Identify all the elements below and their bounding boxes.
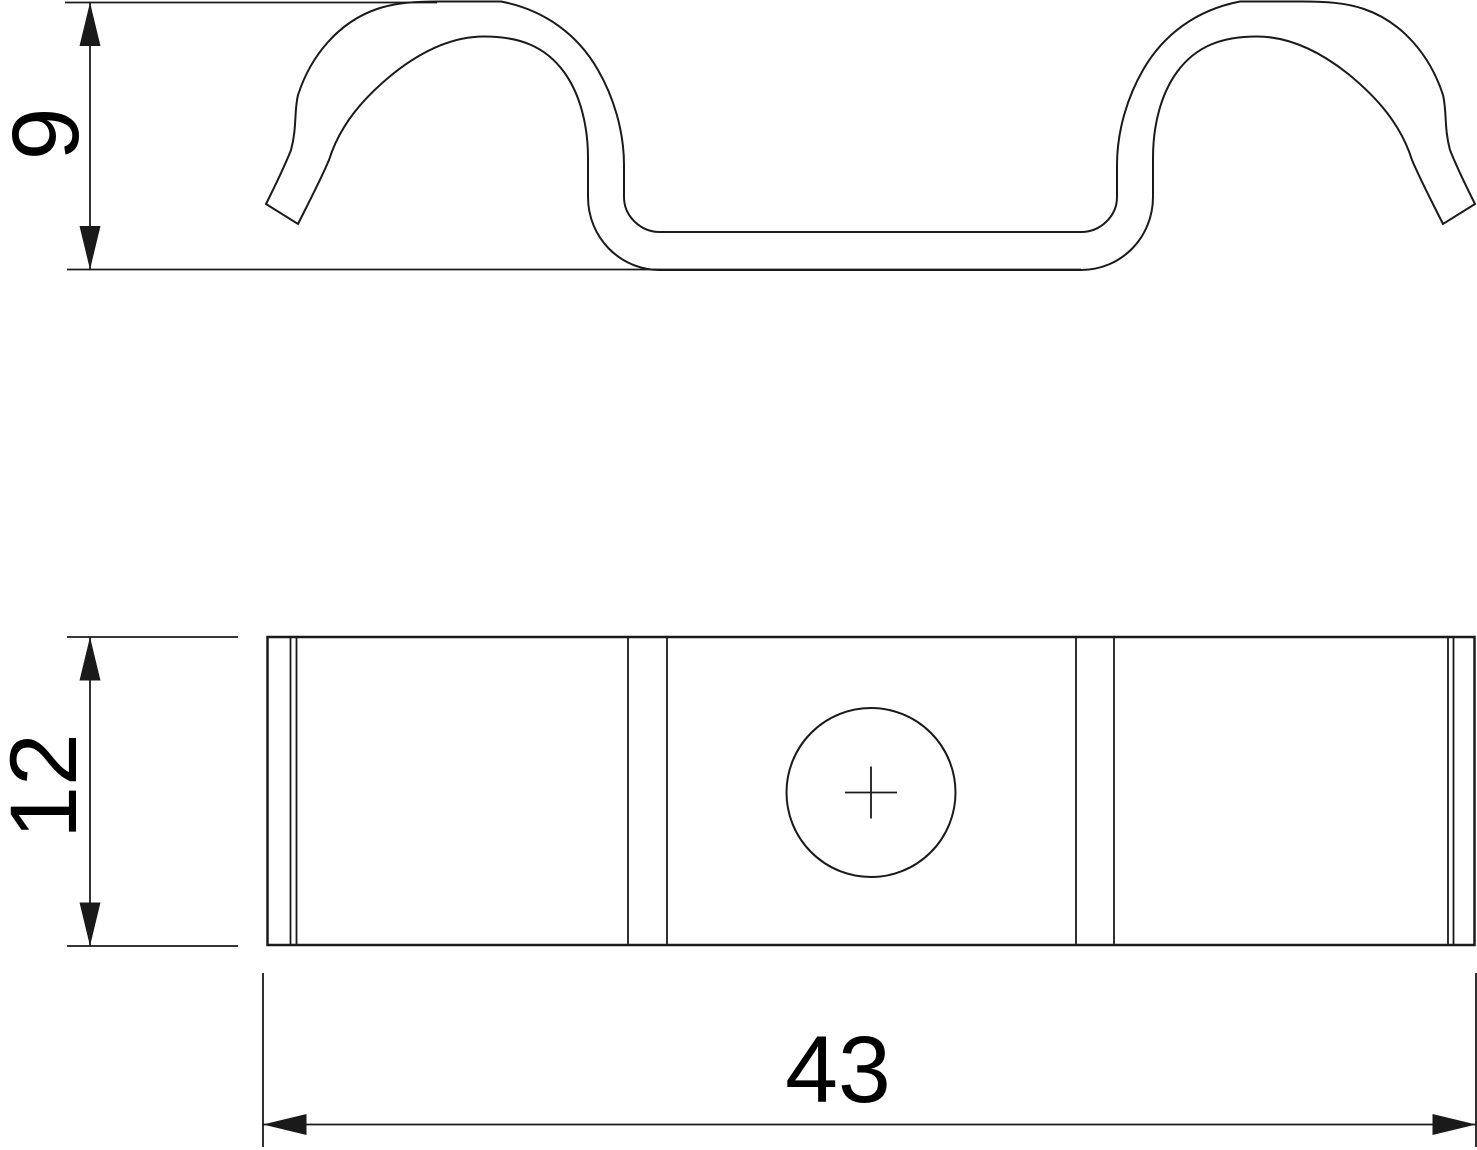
clip-profile-outline xyxy=(266,2,1475,271)
arrowhead-down xyxy=(80,903,101,947)
engineering-drawing: 9 xyxy=(0,0,1477,1150)
dimension-height-9: 9 xyxy=(0,3,1081,270)
engineering-drawing-canvas: 9 xyxy=(0,0,1477,1150)
dim-label-12: 12 xyxy=(0,733,97,839)
bend-lines xyxy=(291,638,1454,944)
arrowhead-up xyxy=(80,637,101,681)
dimension-height-12: 12 xyxy=(0,637,238,946)
arrowhead-down xyxy=(80,226,101,270)
arrowhead-left xyxy=(263,1114,307,1135)
dim-label-43: 43 xyxy=(785,1017,891,1123)
arrowhead-up xyxy=(80,3,101,47)
hole-feature xyxy=(787,708,956,877)
dim-label-9: 9 xyxy=(0,108,99,161)
side-profile-view: 9 xyxy=(0,2,1475,271)
plan-view: 12 43 xyxy=(0,637,1476,1147)
arrowhead-right xyxy=(1433,1114,1477,1135)
dimension-width-43: 43 xyxy=(263,973,1476,1147)
